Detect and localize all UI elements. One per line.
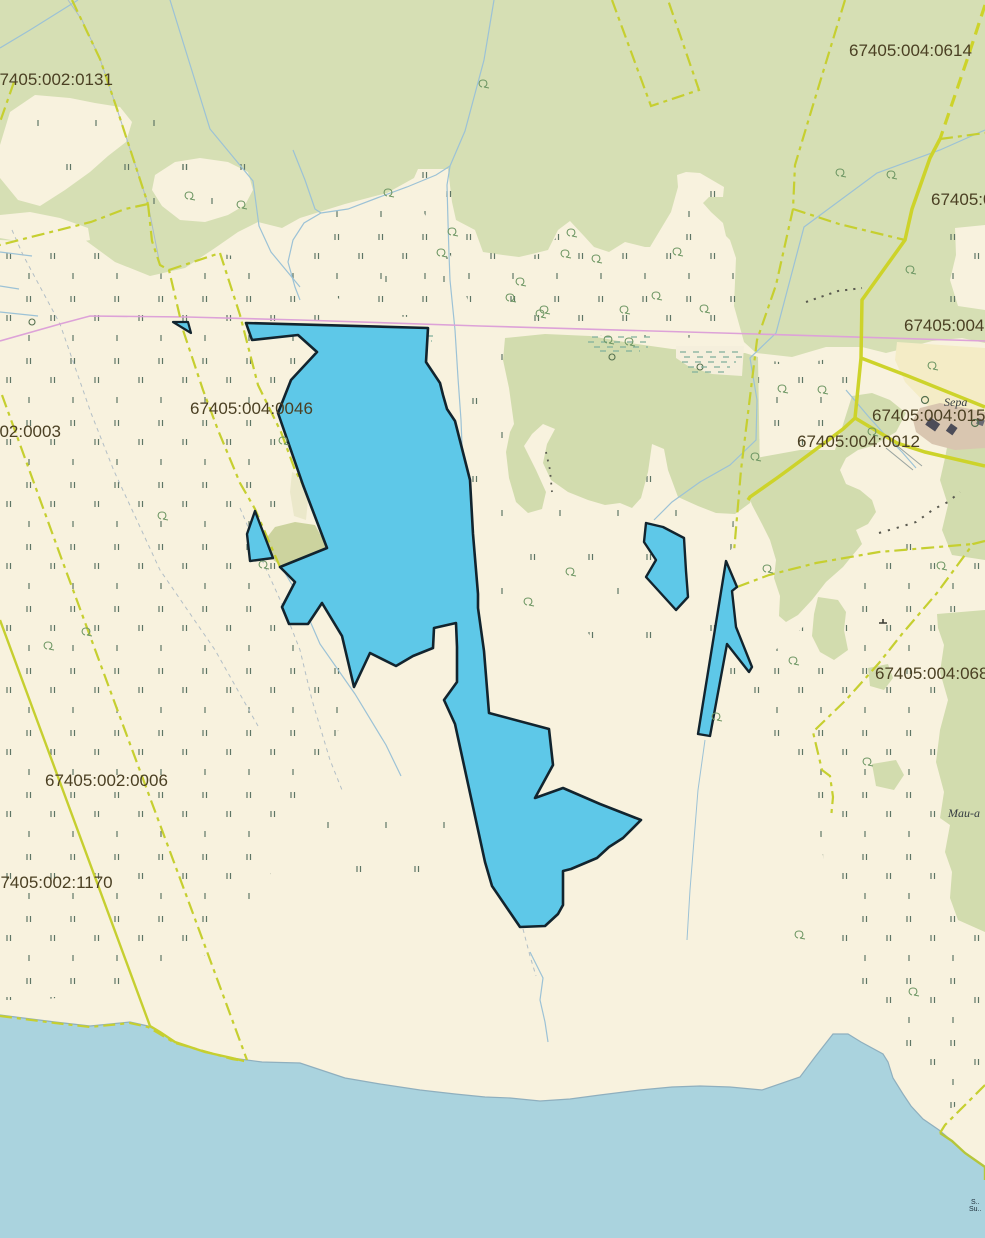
svg-text:S..: S.. bbox=[971, 1199, 980, 1206]
svg-text:67405:004:0012: 67405:004:0012 bbox=[797, 432, 920, 451]
svg-text:67405:004:0046: 67405:004:0046 bbox=[190, 399, 313, 418]
svg-text:67405:004:0684: 67405:004:0684 bbox=[875, 664, 985, 683]
svg-text:67405:002:0006: 67405:002:0006 bbox=[45, 771, 168, 790]
svg-text:67405:004:0: 67405:004:0 bbox=[904, 316, 985, 335]
svg-text:67405:004:0614: 67405:004:0614 bbox=[849, 41, 972, 60]
svg-text:Mau-a: Mau-a bbox=[947, 806, 980, 820]
svg-text:67405:0: 67405:0 bbox=[931, 190, 985, 209]
svg-text:67405:002:0003: 67405:002:0003 bbox=[0, 422, 61, 441]
svg-text:67405:002:1170: 67405:002:1170 bbox=[0, 873, 113, 892]
svg-text:Sepa: Sepa bbox=[944, 395, 967, 409]
svg-text:67405:002:0131: 67405:002:0131 bbox=[0, 70, 113, 89]
svg-text:Su..: Su.. bbox=[969, 1206, 982, 1213]
svg-text:67405:004:0158: 67405:004:0158 bbox=[872, 406, 985, 425]
